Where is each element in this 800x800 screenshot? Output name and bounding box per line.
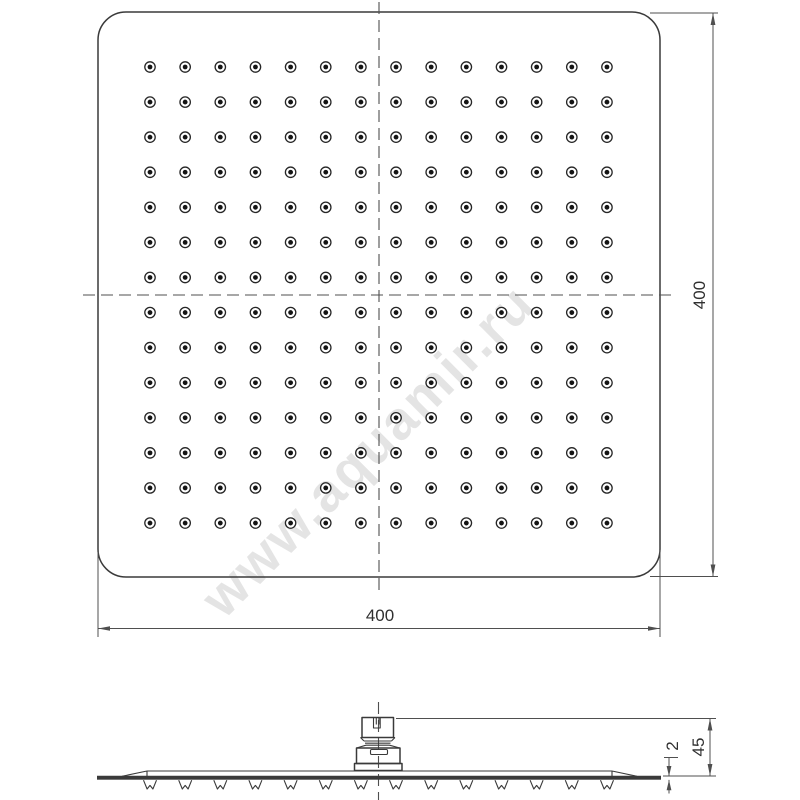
nozzle-center-dot (183, 135, 188, 140)
nozzle-center-dot (288, 415, 293, 420)
nozzle-center-dot (359, 240, 364, 245)
nozzle-center-dot (218, 521, 223, 526)
arrowhead-up (667, 780, 672, 790)
top-view: www.aquamir.ru www.aquamir.ru 400 400 (83, 2, 718, 637)
nozzle-center-dot (148, 275, 153, 280)
nozzle-center-dot (394, 170, 399, 175)
nozzle-center-dot (499, 135, 504, 140)
nozzle-center-dot (429, 415, 434, 420)
nozzle-center-dot (464, 486, 469, 491)
nozzle-center-dot (569, 65, 574, 70)
connector-neck-threads (361, 738, 396, 746)
nozzle-center-dot (359, 486, 364, 491)
nozzle-center-dot (323, 450, 328, 455)
nozzle-center-dot (218, 486, 223, 491)
side-nozzle (354, 780, 367, 789)
nozzle-center-dot (148, 240, 153, 245)
nozzle-center-dot (569, 380, 574, 385)
arrowhead-down (667, 766, 672, 776)
nozzle-center-dot (253, 135, 258, 140)
nozzle-center-dot (569, 135, 574, 140)
nozzle-center-dot (183, 521, 188, 526)
side-nozzle (425, 780, 438, 789)
nozzle-center-dot (323, 275, 328, 280)
nozzle-center-dot (218, 65, 223, 70)
nozzle-center-dot (253, 415, 258, 420)
nozzle-center-dot (569, 345, 574, 350)
nozzle-center-dot (183, 450, 188, 455)
nozzle-center-dot (218, 135, 223, 140)
nozzle-center-dot (183, 380, 188, 385)
shower-head-drawing: www.aquamir.ru www.aquamir.ru 400 400 (0, 0, 800, 800)
nozzle-center-dot (499, 240, 504, 245)
nozzle-center-dot (183, 240, 188, 245)
nozzle-center-dot (183, 310, 188, 315)
nozzle-center-dot (605, 135, 610, 140)
arrowhead-up (708, 719, 713, 731)
nozzle-center-dot (464, 275, 469, 280)
nozzle-center-dot (359, 205, 364, 210)
nozzle-center-dot (429, 486, 434, 491)
nozzle-center-dot (605, 345, 610, 350)
nozzle-center-dot (183, 100, 188, 105)
nozzle-center-dot (605, 486, 610, 491)
nozzle-center-dot (464, 65, 469, 70)
nozzle-center-dot (323, 345, 328, 350)
nozzle-center-dot (148, 415, 153, 420)
nozzle-center-dot (148, 170, 153, 175)
nozzle-center-dot (148, 65, 153, 70)
nozzle-center-dot (253, 240, 258, 245)
arrowhead-left (98, 626, 110, 631)
nozzle-center-dot (499, 205, 504, 210)
side-nozzle (319, 780, 332, 789)
nozzle-center-dot (499, 345, 504, 350)
side-nozzle (179, 780, 192, 789)
nozzle-center-dot (605, 65, 610, 70)
nozzle-center-dot (394, 345, 399, 350)
nozzle-center-dot (394, 521, 399, 526)
nozzle-center-dot (534, 275, 539, 280)
nozzle-center-dot (394, 65, 399, 70)
nozzle-center-dot (429, 275, 434, 280)
nozzle-center-dot (569, 170, 574, 175)
nozzle-center-dot (288, 240, 293, 245)
nozzle-center-dot (499, 380, 504, 385)
dim-width-label: 400 (366, 606, 394, 625)
nozzle-center-dot (429, 345, 434, 350)
nozzle-center-dot (499, 170, 504, 175)
nozzle-center-dot (569, 310, 574, 315)
nozzle-center-dot (148, 345, 153, 350)
side-nozzle (144, 780, 157, 789)
nozzle-center-dot (148, 135, 153, 140)
plate-right-bevel (612, 771, 637, 776)
nozzle-center-dot (464, 450, 469, 455)
nozzle-center-dot (359, 275, 364, 280)
technical-drawing-page: www.aquamir.ru www.aquamir.ru 400 400 (0, 0, 800, 800)
nozzle-center-dot (429, 450, 434, 455)
nozzle-center-dot (464, 345, 469, 350)
nozzle-center-dot (394, 205, 399, 210)
nozzle-center-dot (253, 486, 258, 491)
nozzle-center-dot (605, 205, 610, 210)
nozzle-center-dot (499, 275, 504, 280)
nozzle-center-dot (569, 486, 574, 491)
nozzle-center-dot (569, 275, 574, 280)
nozzle-center-dot (359, 521, 364, 526)
nozzle-center-dot (218, 345, 223, 350)
dim-plate-thickness-label: 2 (663, 741, 682, 750)
nozzle-center-dot (359, 100, 364, 105)
nozzle-center-dot (429, 205, 434, 210)
nozzle-center-dot (148, 100, 153, 105)
nozzle-center-dot (499, 450, 504, 455)
connector-slot (374, 718, 381, 729)
nozzle-center-dot (569, 521, 574, 526)
nozzle-center-dot (253, 65, 258, 70)
nozzle-center-dot (534, 240, 539, 245)
side-nozzle (601, 780, 614, 789)
nozzle-center-dot (429, 380, 434, 385)
nozzle-center-dot (605, 100, 610, 105)
nozzle-center-dot (323, 415, 328, 420)
nozzle-center-dot (253, 450, 258, 455)
nozzle-center-dot (253, 100, 258, 105)
nozzle-center-dot (288, 205, 293, 210)
nozzle-center-dot (183, 205, 188, 210)
nozzle-center-dot (288, 380, 293, 385)
nozzle-center-dot (218, 380, 223, 385)
nozzle-center-dot (183, 486, 188, 491)
nozzle-center-dot (534, 205, 539, 210)
nozzle-center-dot (253, 380, 258, 385)
nozzle-center-dot (148, 450, 153, 455)
nozzle-center-dot (499, 415, 504, 420)
nozzle-center-dot (464, 100, 469, 105)
nozzle-center-dot (148, 380, 153, 385)
nozzle-center-dot (429, 521, 434, 526)
side-view: 45 2 (97, 702, 716, 800)
nozzle-center-dot (218, 240, 223, 245)
nozzle-center-dot (464, 380, 469, 385)
plate-bottom-strip (97, 776, 661, 779)
nozzle-center-dot (288, 345, 293, 350)
nozzle-center-dot (464, 415, 469, 420)
watermark-text: www.aquamir.ru (189, 273, 545, 629)
nozzle-center-dot (359, 135, 364, 140)
nozzle-center-dot (394, 135, 399, 140)
nozzle-center-dot (323, 380, 328, 385)
side-nozzle (390, 780, 403, 789)
nozzle-center-dot (534, 380, 539, 385)
nozzle-center-dot (288, 65, 293, 70)
nozzle-center-dot (394, 240, 399, 245)
arrowhead-right (648, 626, 660, 631)
nozzle-center-dot (534, 486, 539, 491)
nozzle-center-dot (394, 486, 399, 491)
nozzle-center-dot (569, 450, 574, 455)
nozzle-center-dot (218, 100, 223, 105)
nozzle-center-dot (323, 170, 328, 175)
nozzle-center-dot (534, 100, 539, 105)
side-nozzle (460, 780, 473, 789)
connector-recess (371, 750, 388, 755)
nozzle-center-dot (569, 415, 574, 420)
nozzle-center-dot (429, 100, 434, 105)
nozzle-center-dot (605, 310, 610, 315)
nozzle-center-dot (394, 100, 399, 105)
nozzle-center-dot (534, 521, 539, 526)
nozzle-center-dot (359, 380, 364, 385)
nozzle-center-dot (183, 345, 188, 350)
nozzle-center-dot (429, 65, 434, 70)
nozzle-center-dot (218, 310, 223, 315)
nozzle-center-dot (605, 380, 610, 385)
nozzle-center-dot (288, 100, 293, 105)
nozzle-center-dot (499, 100, 504, 105)
nozzle-center-dot (323, 65, 328, 70)
side-nozzle (249, 780, 262, 789)
nozzle-center-dot (394, 275, 399, 280)
nozzle-center-dot (183, 65, 188, 70)
nozzle-center-dot (359, 345, 364, 350)
nozzle-center-dot (323, 310, 328, 315)
nozzle-center-dot (183, 170, 188, 175)
nozzle-center-dot (429, 135, 434, 140)
nozzle-center-dot (534, 65, 539, 70)
nozzle-center-dot (464, 310, 469, 315)
nozzle-center-dot (464, 240, 469, 245)
nozzle-center-dot (253, 275, 258, 280)
side-nozzle (565, 780, 578, 789)
nozzle-center-dot (605, 450, 610, 455)
nozzle-center-dot (288, 521, 293, 526)
nozzle-center-dot (359, 415, 364, 420)
nozzle-center-dot (359, 450, 364, 455)
nozzle-center-dot (148, 205, 153, 210)
plate-left-bevel (122, 771, 147, 776)
nozzle-center-dot (218, 205, 223, 210)
nozzle-center-dot (605, 521, 610, 526)
nozzle-center-dot (534, 135, 539, 140)
nozzle-center-dot (605, 170, 610, 175)
nozzle-center-dot (534, 170, 539, 175)
nozzle-center-dot (323, 486, 328, 491)
arrowhead-down (708, 764, 713, 776)
nozzle-center-dot (288, 310, 293, 315)
nozzle-center-dot (148, 486, 153, 491)
nozzle-center-dot (359, 65, 364, 70)
nozzle-center-dot (218, 415, 223, 420)
dim-total-height-label: 45 (689, 738, 708, 757)
nozzle-center-dot (569, 205, 574, 210)
nozzle-center-dot (534, 415, 539, 420)
nozzle-center-dot (253, 310, 258, 315)
nozzle-center-dot (464, 205, 469, 210)
nozzle-center-dot (288, 486, 293, 491)
nozzle-center-dot (323, 205, 328, 210)
nozzle-center-dot (605, 415, 610, 420)
dim-height-label: 400 (690, 281, 709, 309)
side-nozzle (284, 780, 297, 789)
nozzle-center-dot (605, 240, 610, 245)
nozzle-center-dot (323, 135, 328, 140)
nozzle-center-dot (253, 521, 258, 526)
nozzle-center-dot (148, 521, 153, 526)
nozzle-center-dot (288, 275, 293, 280)
nozzle-center-dot (394, 450, 399, 455)
nozzle-center-dot (429, 240, 434, 245)
nozzle-center-dot (534, 310, 539, 315)
nozzle-center-dot (394, 380, 399, 385)
nozzle-center-dot (253, 345, 258, 350)
nozzle-center-dot (464, 521, 469, 526)
nozzle-center-dot (499, 486, 504, 491)
nozzle-center-dot (218, 450, 223, 455)
nozzle-center-dot (288, 170, 293, 175)
nozzle-center-dot (464, 135, 469, 140)
nozzle-center-dot (288, 450, 293, 455)
nozzle-center-dot (429, 310, 434, 315)
arrowhead-down (711, 565, 716, 577)
nozzle-center-dot (394, 310, 399, 315)
nozzle-center-dot (499, 521, 504, 526)
nozzle-center-dot (323, 240, 328, 245)
nozzle-center-dot (499, 65, 504, 70)
nozzle-center-dot (359, 170, 364, 175)
nozzle-center-dot (429, 170, 434, 175)
nozzle-center-dot (359, 310, 364, 315)
nozzle-center-dot (183, 275, 188, 280)
nozzle-center-dot (183, 415, 188, 420)
nozzle-center-dot (605, 275, 610, 280)
nozzle-center-dot (464, 170, 469, 175)
nozzle-center-dot (218, 275, 223, 280)
nozzle-center-dot (253, 205, 258, 210)
arrowhead-up (711, 13, 716, 25)
side-nozzle (495, 780, 508, 789)
side-nozzle (530, 780, 543, 789)
nozzle-center-dot (323, 521, 328, 526)
side-nozzle (214, 780, 227, 789)
nozzle-center-dot (534, 450, 539, 455)
nozzle-center-dot (323, 100, 328, 105)
dimension-plate-thickness: 2 (663, 741, 682, 793)
nozzle-center-dot (253, 170, 258, 175)
nozzle-center-dot (148, 310, 153, 315)
nozzle-center-dot (569, 100, 574, 105)
nozzle-center-dot (288, 135, 293, 140)
nozzle-center-dot (534, 345, 539, 350)
nozzle-center-dot (499, 310, 504, 315)
nozzle-center-dot (394, 415, 399, 420)
nozzle-center-dot (218, 170, 223, 175)
nozzle-center-dot (569, 240, 574, 245)
